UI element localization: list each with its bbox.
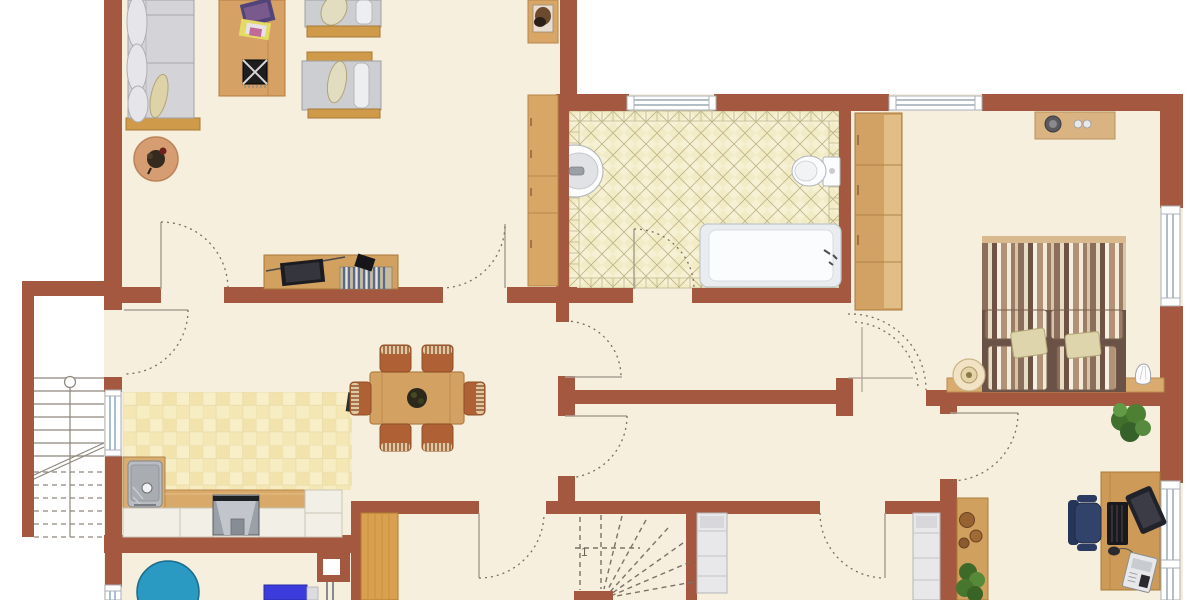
svg-text:1: 1 <box>581 545 588 559</box>
